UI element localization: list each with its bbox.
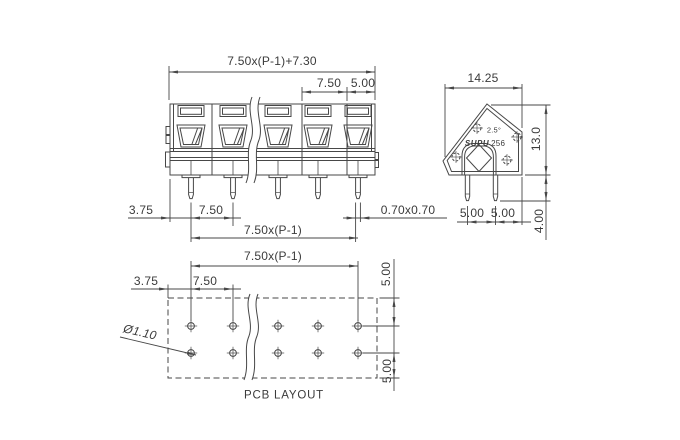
front-total-width-dim: 7.50x(P-1)+7.30 bbox=[227, 55, 316, 67]
side-height-dim: 13.0 bbox=[530, 127, 542, 151]
front-pin-pitch-dim: 7.50 bbox=[199, 204, 223, 216]
front-view-drawing bbox=[166, 104, 379, 199]
pcb-span-dim: 7.50x(P-1) bbox=[244, 250, 302, 262]
side-pin-spacing-dim-1: 5.00 bbox=[460, 207, 484, 219]
pcb-holes bbox=[185, 320, 364, 359]
model-number: 256 bbox=[491, 139, 505, 148]
side-pin-spacing-dim-2: 5.00 bbox=[491, 207, 515, 219]
pcb-pitch-dim: 7.50 bbox=[193, 275, 217, 287]
front-pitch-dim: 7.50 bbox=[317, 77, 341, 89]
front-span-dim: 7.50x(P-1) bbox=[244, 224, 302, 236]
side-view-pins bbox=[465, 175, 497, 201]
side-view-drawing bbox=[443, 104, 523, 201]
drawing-canvas bbox=[0, 0, 680, 440]
pcb-break-lines bbox=[244, 294, 258, 380]
front-end-dim: 5.00 bbox=[351, 77, 375, 89]
front-break-lines bbox=[246, 97, 260, 183]
pcb-layout-drawing bbox=[168, 298, 377, 378]
side-angle-label: 2.5° bbox=[487, 126, 501, 134]
terminal-block-technical-drawing: 7.50x(P-1)+7.30 7.50 5.00 3.75 7.50 0.70… bbox=[0, 0, 680, 440]
brand-name: SUPU bbox=[465, 139, 489, 148]
pcb-left-offset-dim: 3.75 bbox=[134, 275, 158, 287]
pcb-row-bottom-dim: 5.00 bbox=[381, 359, 393, 383]
pcb-layout-caption: PCB LAYOUT bbox=[244, 390, 324, 402]
side-width-dim: 14.25 bbox=[467, 72, 498, 84]
terminal-cells bbox=[177, 106, 372, 199]
hole-diameter-leader bbox=[120, 337, 196, 355]
front-pin-size-dim: 0.70x0.70 bbox=[381, 204, 436, 216]
side-pin-length-dim: 4.00 bbox=[533, 209, 545, 233]
pcb-row-top-dim: 5.00 bbox=[380, 262, 392, 286]
wire-clamp-diamond bbox=[467, 145, 492, 172]
brand-model-label: SUPU256 bbox=[465, 140, 505, 148]
front-left-offset-dim: 3.75 bbox=[129, 204, 153, 216]
